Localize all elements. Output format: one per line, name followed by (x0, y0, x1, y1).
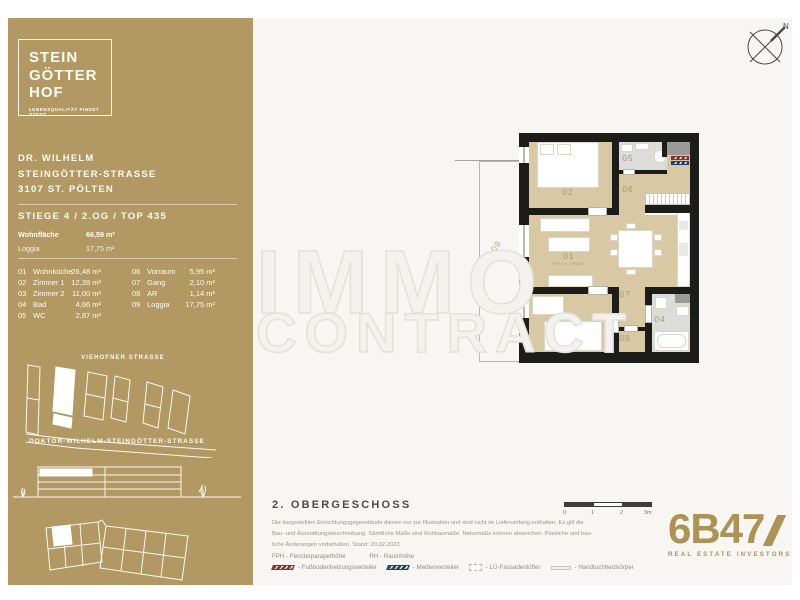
wardrobe (645, 193, 690, 205)
room-09-loggia (479, 161, 519, 362)
area-row: Loggia 17,75 m² (18, 244, 237, 254)
room-no: 04 (18, 300, 26, 309)
room-no: 05 (18, 311, 26, 320)
table-row: 07Gang2,10 m² (132, 278, 216, 288)
dining-table (618, 230, 653, 268)
door (624, 325, 638, 332)
key-plan-sketch (28, 518, 198, 582)
unit-title: STIEGE 4 / 2.OG / TOP 435 (18, 211, 167, 222)
room-label-03: 03 (555, 311, 581, 321)
address-line: STEINGÖTTER-STRASSE (18, 167, 156, 183)
washbasin (676, 306, 689, 316)
room-name: Vorraum (147, 267, 175, 276)
area-row: Wohnfläche 66,59 m² (18, 230, 237, 240)
shelf (635, 143, 649, 150)
scale-tick: 0 (563, 510, 566, 516)
legend-item: - LÜ-Fassadenlüfter (469, 564, 541, 571)
door (612, 315, 619, 333)
legend-item: - Handtuchheizkörper (551, 564, 634, 571)
room-area: 2,87 m² (62, 311, 101, 320)
scale-segment (565, 503, 594, 506)
plan-legend: - Fußbodenheizungsverteiler - Medienvert… (272, 564, 634, 571)
room-name: WC (33, 311, 46, 320)
street-label-top: VIEHOFNER STRASSE (48, 355, 198, 361)
legend-label: - Handtuchheizkörper (575, 564, 634, 571)
disclaimer-line: liche Änderungen vorbehalten. Stand: 20.… (272, 540, 593, 551)
window (519, 147, 529, 163)
scale-tick: 2 (620, 510, 623, 516)
building-elevation-sketch (13, 464, 243, 506)
area-label: Wohnfläche (18, 230, 59, 239)
table-row: 08AR1,14 m² (132, 289, 216, 299)
project-address: DR. WILHELM STEINGÖTTER-STRASSE 3107 ST.… (18, 151, 156, 198)
chair (654, 249, 662, 256)
room-name: Gang (147, 278, 165, 287)
table-row: 04Bad4,66 m² (18, 300, 102, 310)
area-value: 66,59 m² (86, 230, 115, 239)
room-area: 11,00 m² (62, 289, 101, 298)
room-height-label: RH ca. 260cm (544, 261, 594, 266)
wall (519, 352, 699, 363)
chair (626, 223, 636, 229)
wall (690, 133, 699, 363)
room-name: Bad (33, 300, 46, 309)
floor-heating-distributor-icon (271, 565, 295, 570)
room-label-04: 04 (647, 314, 673, 324)
address-line: 3107 ST. PÖLTEN (18, 182, 156, 198)
disclaimer-line: Die dargestellten Einrichtungsgegenständ… (272, 518, 593, 529)
passage (619, 205, 645, 215)
room-name: Zimmer 1 (33, 278, 65, 287)
room-area: 26,48 m² (62, 267, 101, 276)
room-label-08: 08 (612, 333, 638, 343)
wall (645, 287, 652, 363)
scale-segment (594, 503, 623, 506)
brochure-page: STEIN GÖTTER HOF LEBENSQUALITÄT FINDET S… (0, 0, 800, 600)
wall (662, 142, 667, 157)
sink (679, 221, 688, 230)
room-label-02: 02 (555, 187, 581, 197)
room-no: 02 (18, 278, 26, 287)
sidebar-panel: STEIN GÖTTER HOF LEBENSQUALITÄT FINDET S… (8, 18, 253, 585)
logo-line: GÖTTER (29, 67, 111, 85)
scale-bar: 0 1 2 3m (564, 502, 664, 520)
room-area: 2,10 m² (176, 278, 215, 287)
room-no: 07 (132, 278, 140, 287)
street-label-bottom: DOKTOR-WILHELM-STEINGÖTTER-STRASSE (22, 438, 212, 445)
area-label: Loggia (18, 244, 40, 253)
door (623, 169, 635, 175)
chair (610, 249, 618, 256)
logo-tagline: LEBENSQUALITÄT FINDET STADT (29, 107, 111, 117)
scale-bar-segments (564, 502, 652, 507)
room-no: 09 (132, 300, 140, 309)
table-row: 01Wohnküche26,48 m² (18, 267, 102, 277)
scale-tick: 3m (644, 510, 652, 516)
room-area: 1,14 m² (176, 289, 215, 298)
sideboard (540, 218, 590, 232)
room-name: Zimmer 2 (33, 289, 65, 298)
logo-line: STEIN (29, 49, 111, 67)
table-row: 03Zimmer 211,00 m² (18, 289, 102, 299)
table-row: 02Zimmer 112,39 m² (18, 278, 102, 288)
room-no: 03 (18, 289, 26, 298)
room-area: 5,95 m² (176, 267, 215, 276)
legend-item: - Fußbodenheizungsverteiler (272, 564, 377, 571)
wall (645, 205, 690, 213)
room-label-05: 05 (615, 153, 641, 163)
legend-label: - LÜ-Fassadenlüfter (486, 564, 541, 571)
room-label-01: 01 (556, 251, 582, 261)
address-line: DR. WILHELM (18, 151, 156, 167)
scale-tick: 1 (591, 510, 594, 516)
room-area: 17,75 m² (176, 300, 215, 309)
brand-name: 6B47 (668, 510, 764, 548)
wall (519, 133, 699, 142)
sofa (548, 237, 590, 252)
sideboard (548, 275, 593, 287)
floor-title: 2. OBERGESCHOSS (272, 499, 411, 511)
washbasin (621, 144, 633, 152)
chair (626, 269, 636, 275)
room-label-07: 07 (612, 289, 638, 299)
legend-label: - Fußbodenheizungsverteiler (298, 564, 377, 571)
floor-heating-distributor-icon (671, 156, 689, 160)
brand-subtitle: REAL ESTATE INVESTORS (668, 551, 798, 558)
legend-item: - Medienverteiler (387, 564, 459, 571)
abbreviation-key: FPH - Fensterparapethöhe RH - Raumhöhe (272, 553, 414, 560)
room-no: 08 (132, 289, 140, 298)
room-no: 01 (18, 267, 26, 276)
room-name: AR (147, 289, 157, 298)
window (519, 225, 529, 257)
pillow (540, 144, 554, 155)
room-name: Loggia (147, 300, 170, 309)
disclaimer-text: Die dargestellten Einrichtungsgegenständ… (272, 518, 593, 551)
paper-sheet: STEIN GÖTTER HOF LEBENSQUALITÄT FINDET S… (8, 18, 792, 585)
abbrev-fph: FPH - Fensterparapethöhe (272, 553, 346, 560)
bathtub-inner (657, 334, 686, 348)
washing-machine (655, 297, 667, 309)
door (588, 286, 608, 295)
table-row: 05WC2,87 m² (18, 311, 102, 321)
dimension-line (455, 160, 519, 161)
stove (679, 243, 688, 256)
room-no: 06 (132, 267, 140, 276)
brand-logo: 6B47 (668, 510, 798, 548)
brand-slash-icon (763, 515, 786, 546)
abbrev-rh: RH - Raumhöhe (369, 553, 414, 560)
bed (544, 321, 602, 351)
room-area: 4,66 m² (62, 300, 101, 309)
divider (18, 204, 237, 205)
table-row: 06Vorraum5,95 m² (132, 267, 216, 277)
compass-icon: N (738, 18, 794, 74)
scale-segment (622, 503, 651, 506)
floor-plan: 01 RH ca. 260cm 02 03 04 05 06 07 08 09 (455, 125, 715, 370)
area-value: 17,75 m² (86, 244, 114, 253)
chair (610, 234, 618, 241)
shaft (667, 140, 690, 155)
media-distributor-icon (671, 161, 689, 165)
project-logo: STEIN GÖTTER HOF LEBENSQUALITÄT FINDET S… (18, 39, 112, 116)
towel-radiator-icon (551, 566, 571, 570)
table-row: 09Loggia17,75 m² (132, 300, 216, 310)
window (519, 298, 529, 318)
media-distributor-icon (386, 565, 410, 570)
logo-line: HOF (29, 84, 111, 102)
room-area: 12,39 m² (62, 278, 101, 287)
room-label-06: 06 (615, 184, 641, 194)
divider (18, 258, 237, 259)
chair (654, 234, 662, 241)
disclaimer-line: Bau- und Ausstattungsbeschreibung. Sämtl… (272, 529, 593, 540)
legend-label: - Medienverteiler (413, 564, 459, 571)
facade-ventilation-icon (469, 564, 482, 571)
door (588, 207, 607, 216)
compass-north-label: N (783, 22, 789, 31)
developer-brand: 6B47 REAL ESTATE INVESTORS (668, 510, 798, 558)
pillow (557, 144, 571, 155)
